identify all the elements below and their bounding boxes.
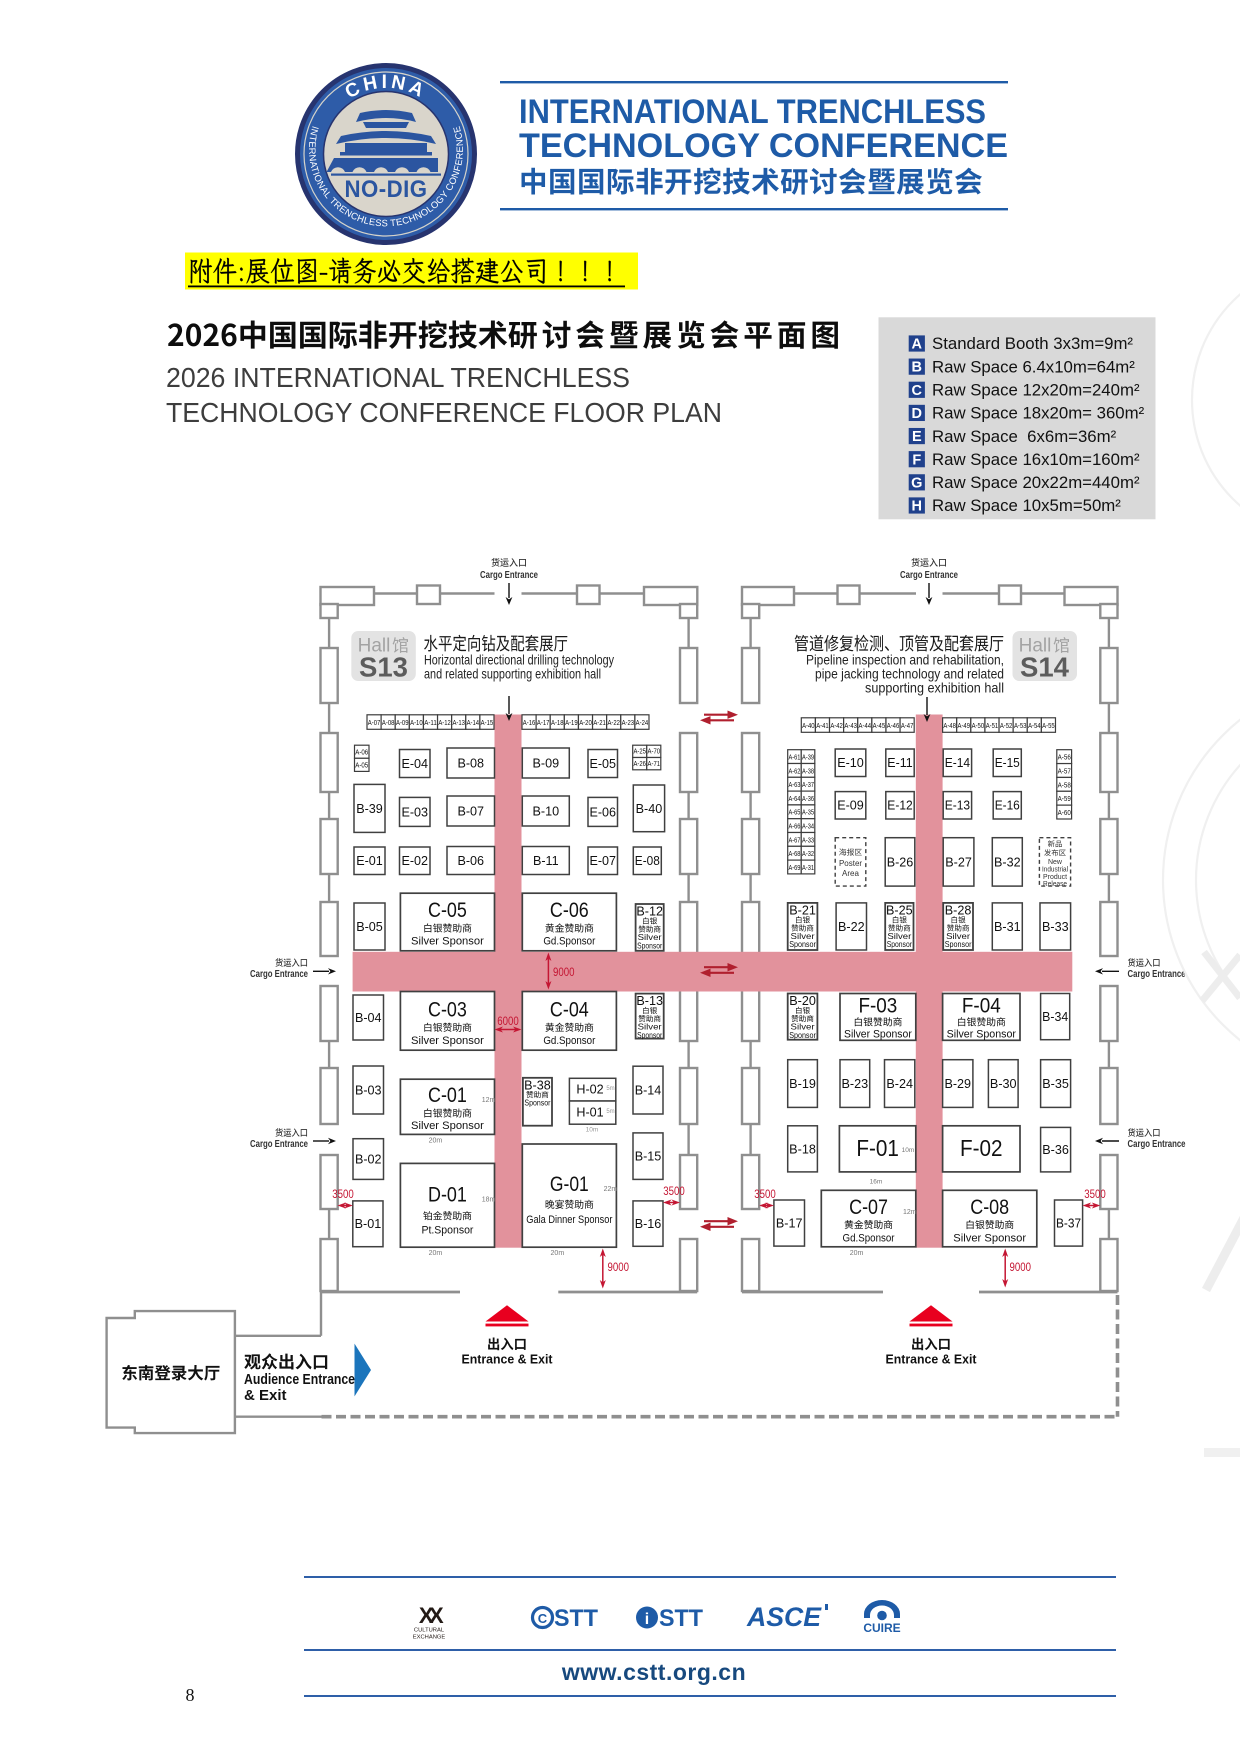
svg-text:C-08: C-08 [970,1196,1009,1219]
svg-text:B-36: B-36 [1042,1143,1069,1157]
svg-text:A-67: A-67 [789,837,801,844]
svg-text:C-01: C-01 [428,1084,467,1107]
svg-text:18m: 18m [482,1196,496,1203]
svg-text:B: B [912,360,922,376]
svg-text:A-60: A-60 [1058,810,1071,817]
svg-text:A-49: A-49 [958,723,971,730]
svg-text:B-06: B-06 [457,854,484,868]
svg-text:E-09: E-09 [837,799,864,813]
svg-text:C-06: C-06 [550,899,589,922]
svg-text:A-26: A-26 [634,761,647,768]
svg-text:A-07: A-07 [368,720,381,727]
svg-text:F-02: F-02 [960,1135,1003,1161]
svg-text:Audience Entrance: Audience Entrance [244,1371,355,1388]
svg-text:B-08: B-08 [457,756,484,770]
svg-text:A-52: A-52 [1000,723,1013,730]
svg-text:B-25: B-25 [886,903,913,917]
svg-text:A-63: A-63 [789,782,801,789]
svg-text:B-19: B-19 [789,1077,816,1091]
svg-text:Sponsor: Sponsor [637,941,662,950]
svg-text:A-15: A-15 [481,720,494,727]
svg-text:Gd.Sponsor: Gd.Sponsor [843,1232,895,1244]
svg-text:8: 8 [186,1685,195,1705]
svg-text:A-45: A-45 [873,723,886,730]
svg-text:S14: S14 [1020,652,1070,683]
svg-text:STT: STT [554,1605,598,1632]
svg-text:A-66: A-66 [789,824,801,831]
svg-text:E-08: E-08 [635,854,660,868]
svg-text:STT: STT [659,1605,703,1632]
svg-text:A-58: A-58 [1058,782,1071,789]
svg-text:3500: 3500 [663,1186,685,1198]
svg-text:E-04: E-04 [401,757,428,771]
svg-text:A-12: A-12 [438,720,451,727]
svg-text:A-37: A-37 [802,782,814,789]
svg-text:Silver Sponsor: Silver Sponsor [844,1029,912,1041]
svg-text:Cargo Entrance: Cargo Entrance [1128,1139,1186,1150]
svg-text:Silver Sponsor: Silver Sponsor [411,1035,484,1047]
svg-text:Raw Space 6.4x10m=64m²: Raw Space 6.4x10m=64m² [932,357,1135,376]
svg-text:Release: Release [1043,881,1067,888]
svg-text:Product: Product [1043,874,1067,881]
svg-text:A-11: A-11 [424,720,437,727]
svg-text:20m: 20m [551,1250,565,1257]
svg-text:Raw Space 6x6m=36m²: Raw Space 6x6m=36m² [932,427,1117,446]
svg-text:www.cstt.org.cn: www.cstt.org.cn [561,1659,746,1685]
svg-text:9000: 9000 [608,1262,630,1274]
svg-text:A-17: A-17 [537,720,550,727]
svg-text:5m: 5m [606,1109,614,1115]
svg-text:Cargo Entrance: Cargo Entrance [250,1139,308,1150]
svg-text:Raw Space 10x5m=50m²: Raw Space 10x5m=50m² [932,496,1121,515]
svg-text:and related supporting exhibit: and related supporting exhibition hall [424,666,601,682]
svg-text:B-13: B-13 [636,994,663,1008]
svg-text:A-34: A-34 [802,824,814,831]
svg-text:A-38: A-38 [802,768,814,775]
svg-text:20m: 20m [850,1250,864,1257]
svg-text:A-47: A-47 [901,723,914,730]
svg-text:C-03: C-03 [428,999,467,1022]
svg-text:A-43: A-43 [844,723,857,730]
svg-text:A-22: A-22 [607,720,620,727]
svg-text:A-69: A-69 [789,865,801,872]
svg-text:B-38: B-38 [524,1078,551,1092]
svg-text:Sponsor: Sponsor [637,1031,662,1040]
svg-text:B-11: B-11 [533,854,559,868]
svg-text:& Exit: & Exit [244,1387,287,1404]
svg-text:B-04: B-04 [355,1011,382,1025]
svg-text:B-01: B-01 [355,1217,382,1231]
svg-text:B-09: B-09 [532,756,559,770]
svg-text:XX: XX [419,1603,444,1628]
svg-text:Poster: Poster [839,859,862,868]
svg-text:i: i [645,1611,649,1628]
svg-text:A: A [912,337,923,353]
svg-text:A-32: A-32 [802,851,814,858]
svg-text:E-02: E-02 [401,854,428,868]
svg-text:CULTURAL: CULTURAL [414,1628,445,1634]
svg-text:B-15: B-15 [635,1150,662,1164]
svg-text:B-29: B-29 [944,1077,971,1091]
svg-text:Gd.Sponsor: Gd.Sponsor [543,1035,595,1047]
svg-text:B-14: B-14 [635,1084,662,1098]
svg-text:Standard Booth 3x3m=9m²: Standard Booth 3x3m=9m² [932,334,1133,353]
svg-text:C-04: C-04 [550,999,589,1022]
svg-text:5m: 5m [606,1086,614,1092]
svg-text:A-64: A-64 [789,796,801,803]
svg-text:B-21: B-21 [789,903,816,917]
svg-text:S13: S13 [359,652,408,683]
svg-text:A-19: A-19 [565,720,578,727]
svg-text:A-23: A-23 [622,720,635,727]
svg-text:A-21: A-21 [593,720,606,727]
svg-text:B-12: B-12 [636,905,663,919]
svg-text:Cargo Entrance: Cargo Entrance [250,969,308,980]
svg-text:G-01: G-01 [550,1173,589,1196]
svg-text:Cargo Entrance: Cargo Entrance [1128,969,1186,980]
svg-text:A-65: A-65 [789,810,801,817]
svg-text:E: E [912,429,922,445]
svg-text:A-59: A-59 [1058,796,1071,803]
svg-text:B-32: B-32 [994,855,1021,869]
svg-text:E-11: E-11 [887,756,912,770]
svg-text:D-01: D-01 [428,1183,467,1206]
svg-text:Silver Sponsor: Silver Sponsor [411,936,484,948]
svg-text:B-31: B-31 [994,920,1021,934]
svg-text:EXCHANGE: EXCHANGE [413,1635,446,1641]
svg-text:B-20: B-20 [789,994,816,1008]
svg-text:A-46: A-46 [887,723,900,730]
svg-text:C-05: C-05 [428,899,467,922]
svg-text:22m: 22m [604,1186,618,1193]
svg-text:B-05: B-05 [356,920,383,934]
svg-text:Entrance & Exit: Entrance & Exit [462,1352,554,1367]
svg-text:A-33: A-33 [802,837,814,844]
svg-text:A-53: A-53 [1014,723,1027,730]
svg-text:Pt.Sponsor: Pt.Sponsor [421,1224,473,1236]
svg-text:A-39: A-39 [802,755,814,762]
svg-text:A-57: A-57 [1058,768,1071,775]
svg-text:12m: 12m [482,1097,496,1104]
svg-text:Raw Space 12x20m=240m²: Raw Space 12x20m=240m² [932,380,1140,399]
svg-text:A-08: A-08 [382,720,395,727]
svg-text:10m: 10m [902,1147,915,1154]
svg-text:F-03: F-03 [858,995,897,1018]
svg-text:Gala Dinner Sponsor: Gala Dinner Sponsor [526,1214,612,1226]
svg-text:B-39: B-39 [356,802,383,816]
svg-text:B-26: B-26 [887,855,914,869]
svg-text:Sponsor: Sponsor [945,940,972,949]
svg-text:Entrance & Exit: Entrance & Exit [886,1352,978,1367]
svg-text:G: G [911,475,922,491]
svg-text:E-05: E-05 [590,757,617,771]
svg-text:12m: 12m [903,1209,917,1216]
svg-text:A-42: A-42 [830,723,843,730]
svg-text:supporting exhibition hall: supporting exhibition hall [865,680,1004,696]
svg-text:A-51: A-51 [986,723,999,730]
svg-text:B-18: B-18 [789,1142,816,1156]
svg-text:A-48: A-48 [943,723,956,730]
svg-text:Sponsor: Sponsor [789,940,816,949]
svg-text:NO-DIG: NO-DIG [345,176,428,203]
svg-text:B-10: B-10 [532,804,559,818]
svg-text:B-27: B-27 [945,855,972,869]
svg-text:Sponsor: Sponsor [524,1099,550,1108]
svg-text:E-15: E-15 [995,756,1020,770]
svg-text:Sponsor: Sponsor [887,940,913,949]
svg-text:A-06: A-06 [355,749,368,756]
svg-text:A-20: A-20 [579,720,592,727]
svg-text:Area: Area [842,869,859,878]
svg-text:TECHNOLOGY CONFERENCE: TECHNOLOGY CONFERENCE [519,127,1008,165]
svg-text:B-30: B-30 [990,1077,1017,1091]
svg-text:H-01: H-01 [576,1106,603,1120]
svg-text:A-10: A-10 [410,720,423,727]
svg-text:3500: 3500 [1084,1189,1106,1201]
svg-text:B-37: B-37 [1056,1216,1081,1230]
svg-text:B-16: B-16 [635,1217,662,1231]
svg-text:ASCE: ASCE [746,1602,822,1632]
svg-text:D: D [912,406,922,422]
svg-text:CUIRE: CUIRE [863,1621,900,1635]
svg-text:A-54: A-54 [1028,723,1041,730]
svg-text:INTERNATIONAL TRENCHLESS: INTERNATIONAL TRENCHLESS [519,93,986,131]
svg-text:C: C [912,383,923,399]
svg-text:E-10: E-10 [837,756,864,770]
svg-text:A-71: A-71 [648,761,661,768]
svg-text:Sponsor: Sponsor [789,1031,816,1040]
svg-text:B-22: B-22 [838,920,865,934]
svg-text:Cargo Entrance: Cargo Entrance [480,570,538,581]
svg-text:B-35: B-35 [1042,1077,1069,1091]
svg-text:Gd.Sponsor: Gd.Sponsor [543,936,595,948]
svg-text:20m: 20m [429,1250,443,1257]
svg-text:E-07: E-07 [590,854,617,868]
svg-text:F: F [912,452,921,468]
svg-text:A-36: A-36 [802,796,814,803]
svg-text:E-13: E-13 [945,799,970,813]
svg-text:F-01: F-01 [856,1135,899,1161]
svg-text:B-40: B-40 [636,802,663,816]
svg-text:B-28: B-28 [945,903,972,917]
svg-text:A-50: A-50 [972,723,985,730]
svg-text:Raw Space 18x20m= 360m²: Raw Space 18x20m= 360m² [932,404,1145,423]
svg-text:A-35: A-35 [802,810,814,817]
svg-text:3500: 3500 [754,1189,776,1201]
svg-text:20m: 20m [429,1137,443,1144]
svg-text:A-56: A-56 [1058,755,1071,762]
svg-text:Cargo Entrance: Cargo Entrance [900,570,958,581]
svg-text:2026 INTERNATIONAL TRENCHLESS: 2026 INTERNATIONAL TRENCHLESS [166,362,630,393]
svg-text:B-23: B-23 [842,1077,869,1091]
svg-text:B-02: B-02 [355,1152,382,1166]
svg-text:A-68: A-68 [789,851,801,858]
svg-text:B-33: B-33 [1042,920,1069,934]
svg-text:B-03: B-03 [355,1083,382,1097]
svg-text:New: New [1048,859,1063,866]
svg-text:10m: 10m [586,1127,599,1134]
svg-text:16m: 16m [870,1179,883,1186]
svg-text:B-34: B-34 [1042,1010,1068,1024]
svg-text:6000: 6000 [497,1016,519,1028]
svg-text:A-61: A-61 [789,755,801,762]
svg-text:A-25: A-25 [634,749,647,756]
svg-text:A-13: A-13 [452,720,465,727]
svg-text:B-07: B-07 [457,804,484,818]
svg-text:A-18: A-18 [551,720,564,727]
svg-text:C: C [538,1611,548,1626]
svg-text:A-14: A-14 [467,720,480,727]
svg-text:E-16: E-16 [995,799,1020,813]
svg-text:A-05: A-05 [355,762,368,769]
svg-text:Silver Sponsor: Silver Sponsor [947,1029,1017,1041]
svg-text:Silver Sponsor: Silver Sponsor [411,1120,484,1132]
svg-text:Silver Sponsor: Silver Sponsor [953,1232,1026,1244]
svg-text:A-16: A-16 [523,720,536,727]
svg-text:TECHNOLOGY CONFERENCE FLOOR PL: TECHNOLOGY CONFERENCE FLOOR PLAN [166,397,722,428]
svg-text:A-41: A-41 [816,723,829,730]
svg-text:Raw Space 20x22m=440m²: Raw Space 20x22m=440m² [932,473,1140,492]
svg-text:E-01: E-01 [356,854,383,868]
svg-text:F-04: F-04 [962,995,1001,1018]
svg-text:A-62: A-62 [789,768,801,775]
svg-text:3500: 3500 [332,1189,354,1201]
svg-text:B-24: B-24 [886,1077,913,1091]
svg-text:A-55: A-55 [1042,723,1055,730]
svg-text:A-44: A-44 [859,723,872,730]
svg-text:9000: 9000 [1010,1262,1032,1274]
svg-text:B-17: B-17 [776,1216,803,1230]
svg-text:H-02: H-02 [576,1083,603,1097]
svg-text:9000: 9000 [553,967,575,979]
svg-text:E-06: E-06 [590,805,617,819]
svg-text:A-31: A-31 [802,865,814,872]
svg-text:A-24: A-24 [636,720,649,727]
svg-text:E-14: E-14 [945,756,970,770]
svg-text:H: H [912,499,922,515]
svg-text:A-40: A-40 [802,723,815,730]
svg-text:E-12: E-12 [887,799,912,813]
svg-text:A-70: A-70 [648,749,661,756]
svg-text:E-03: E-03 [401,805,428,819]
svg-text:A-09: A-09 [396,720,409,727]
svg-text:C-07: C-07 [849,1196,888,1219]
svg-text:Industrial: Industrial [1042,867,1068,874]
svg-text:Raw Space 16x10m=160m²: Raw Space 16x10m=160m² [932,450,1140,469]
